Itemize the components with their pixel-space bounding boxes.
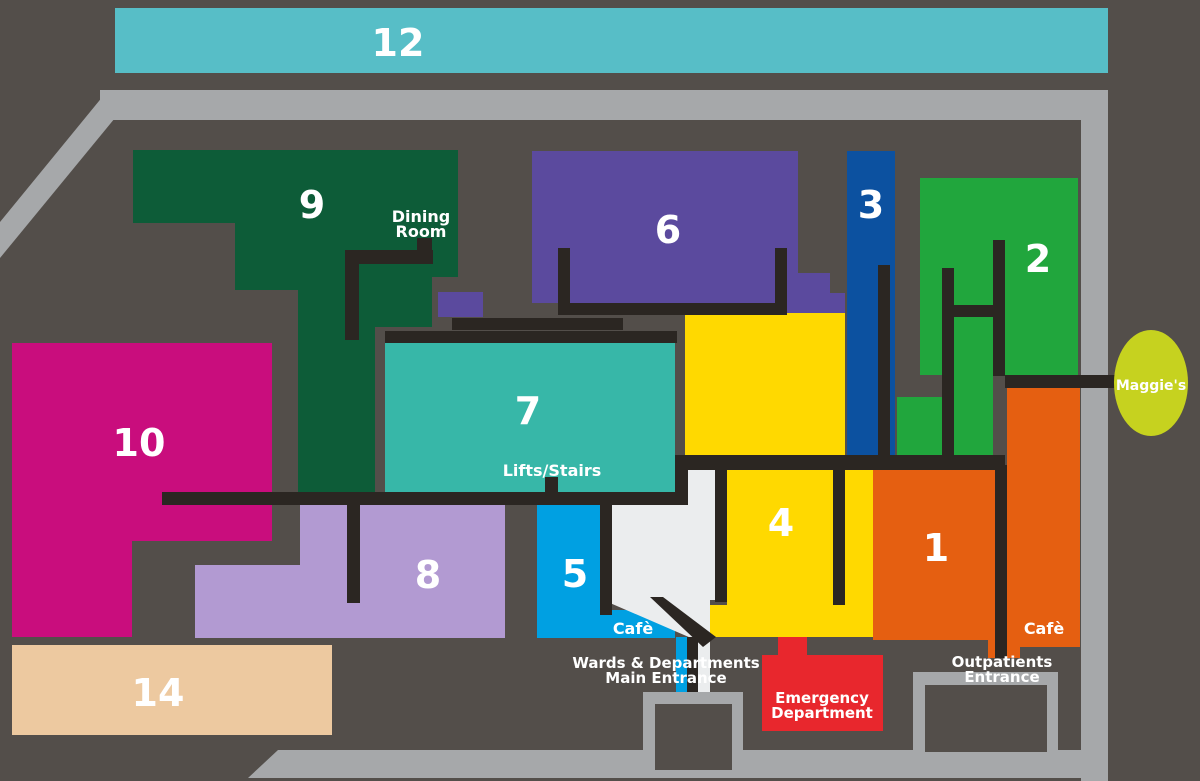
cafe-label-block1: Cafè bbox=[1024, 619, 1065, 638]
dining-room-label-line2: Room bbox=[396, 222, 447, 241]
corridor-segment bbox=[345, 250, 359, 340]
corridor-segment bbox=[953, 305, 993, 317]
building-14-number: 14 bbox=[132, 671, 185, 715]
corridor-segment bbox=[558, 303, 787, 315]
building-6-number: 6 bbox=[655, 208, 681, 252]
corridor-segment bbox=[385, 331, 677, 343]
main-entrance-label-line2: Main Entrance bbox=[605, 669, 726, 687]
corridor-segment bbox=[162, 492, 677, 505]
corridor-segment bbox=[347, 505, 360, 603]
corridor-segment bbox=[452, 318, 623, 330]
corridor-segment bbox=[995, 465, 1007, 658]
building-1-number: 1 bbox=[923, 526, 949, 570]
building-9-number: 9 bbox=[299, 183, 325, 227]
building-2-number: 2 bbox=[1025, 237, 1051, 281]
building-12[interactable] bbox=[115, 8, 1108, 73]
cafe-label-block5: Cafè bbox=[613, 619, 654, 638]
building-5-number: 5 bbox=[562, 552, 588, 596]
corridor-segment bbox=[558, 248, 570, 308]
corridor-segment bbox=[715, 470, 727, 602]
main-entrance-gate bbox=[643, 692, 743, 770]
corridor-to-maggies bbox=[1005, 375, 1115, 388]
corridor-segment bbox=[993, 240, 1005, 376]
road-top bbox=[100, 90, 1108, 120]
building-7-number: 7 bbox=[515, 389, 541, 433]
lifts-stairs-label: Lifts/Stairs bbox=[503, 461, 602, 480]
corridor-segment bbox=[878, 265, 890, 465]
building-6-annex[interactable] bbox=[438, 292, 483, 317]
hospital-site-map: 12 9 6 3 2 10 7 8 5 4 1 14 Dining Room L… bbox=[0, 0, 1200, 781]
maggies-label: Maggie's bbox=[1116, 378, 1186, 394]
outpatients-label-line2: Entrance bbox=[964, 668, 1039, 686]
corridor-segment bbox=[942, 268, 954, 458]
building-8-number: 8 bbox=[415, 553, 441, 597]
corridor-segment bbox=[833, 470, 845, 605]
building-10-number: 10 bbox=[113, 421, 166, 465]
corridor-segment bbox=[600, 505, 612, 615]
road-right bbox=[1081, 90, 1108, 781]
map-canvas: 12 9 6 3 2 10 7 8 5 4 1 14 Dining Room L… bbox=[0, 0, 1200, 781]
corridor-segment bbox=[675, 455, 1005, 470]
building-4-number: 4 bbox=[768, 501, 794, 545]
building-12-number: 12 bbox=[372, 21, 425, 65]
emergency-label-line2: Department bbox=[771, 704, 873, 722]
building-3-number: 3 bbox=[858, 183, 884, 227]
corridor-segment bbox=[775, 248, 787, 308]
